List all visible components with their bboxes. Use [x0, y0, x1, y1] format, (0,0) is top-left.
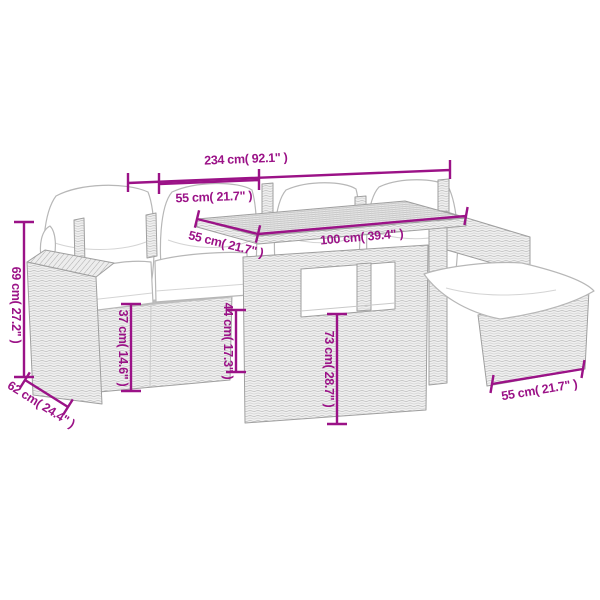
- sofa-right-side-panel: [429, 211, 447, 385]
- seat-cushion-2: [155, 252, 248, 302]
- dim-seat-width-label: 55 cm( 21.7" ): [175, 189, 252, 206]
- dim-total-width-label: 234 cm( 92.1" ): [204, 150, 288, 167]
- dim-shelf-height-label: 44 cm( 17.3" ): [221, 303, 235, 380]
- dim-seat-height-label: 37 cm( 14.6" ): [116, 310, 130, 387]
- furniture-line-art: [27, 179, 594, 423]
- dim-back-height-label: 69 cm( 27.2" ): [9, 267, 23, 344]
- product-dimension-diagram: 234 cm( 92.1" ) 55 cm( 21.7" ) 55 cm( 21…: [0, 0, 600, 600]
- left-armrest: [27, 262, 102, 404]
- frame-post-2: [146, 213, 157, 258]
- table-shelf-divider: [357, 263, 371, 311]
- dim-shelf-height: 44 cm( 17.3" ): [221, 303, 246, 380]
- table-shelf-opening: [301, 262, 395, 317]
- frame-post-5: [438, 179, 449, 215]
- dim-table-height-label: 73 cm( 28.7" ): [322, 331, 336, 408]
